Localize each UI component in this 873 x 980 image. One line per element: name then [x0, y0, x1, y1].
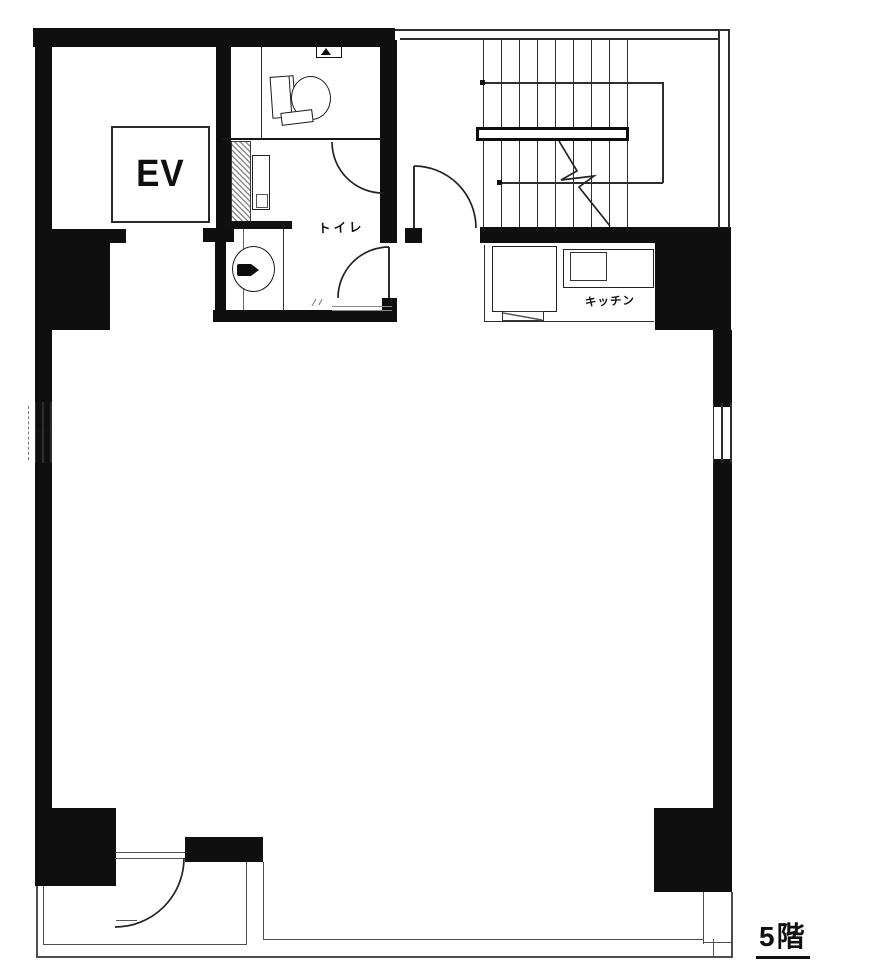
wall-toilet-right — [380, 40, 397, 243]
stair-boundary-top-outer — [395, 29, 729, 31]
balcony-left-inner-line — [43, 886, 44, 945]
pipe-shaft-hatch — [231, 141, 251, 222]
elevator-label: EV — [136, 153, 184, 196]
vanity-fixture — [252, 155, 270, 210]
toilet-label: トイレ — [318, 216, 365, 237]
left-window-center-line — [42, 402, 44, 463]
right-window-frame-left — [713, 403, 714, 463]
stair-handrail-bar — [476, 127, 629, 141]
balcony-step-line — [263, 862, 264, 940]
wc-door-swing-arc — [332, 142, 383, 193]
stairwell-node-dot — [480, 80, 485, 85]
balcony-right-cell-line — [703, 892, 704, 944]
stair-boundary-right-outer — [728, 29, 730, 228]
kitchen-label: キッチン — [585, 292, 636, 310]
stair-boundary-right-inner — [718, 29, 720, 228]
left-window-dash-marks — [28, 406, 29, 460]
left-window-frame-right — [50, 402, 52, 463]
balcony-right-cell-bottom — [703, 942, 732, 943]
wall-toilet-bottom — [213, 310, 397, 322]
right-window-center-line — [721, 403, 723, 463]
stairwell-right-line — [662, 82, 664, 183]
basin-faucet-icon — [237, 264, 252, 276]
balcony-main-inner-line — [263, 939, 704, 940]
balcony-left-outer-line — [36, 886, 38, 957]
stairwell-bottom-line — [497, 182, 663, 184]
kitchen-bottom-line — [484, 321, 654, 322]
wall-door-jamb — [405, 228, 422, 243]
floor-plan-canvas: EV トイレ キッチン 5階 — [0, 0, 873, 980]
wc-vent-window — [316, 46, 342, 58]
toilet-base-icon — [280, 109, 313, 126]
balcony-right-step-line — [713, 939, 714, 957]
wall-toilet-left — [216, 47, 231, 241]
stairwell-top-line — [483, 82, 663, 84]
refrigerator-space — [492, 246, 557, 312]
wall-bottom-left-block — [35, 808, 116, 886]
wall-right-block-lower — [654, 808, 732, 892]
basin-faucet-tip-icon — [251, 264, 259, 276]
toilet-threshold-line — [332, 310, 392, 311]
wall-right-block-upper — [655, 227, 731, 330]
balcony-door-threshold — [115, 858, 185, 859]
corridor-door-swing-arc — [414, 166, 476, 228]
wall-toilet-left-stub — [203, 228, 234, 242]
refrigerator-strip — [502, 311, 544, 321]
stair-boundary-top-inner — [400, 38, 718, 40]
balcony-door-tick — [116, 920, 137, 921]
stairwell-node-dot — [497, 180, 502, 185]
balcony-outer-bottom-line — [36, 956, 733, 958]
elevator-box: EV — [111, 126, 210, 223]
wall-right-upper — [713, 330, 732, 403]
balcony-right-outer-line — [731, 892, 733, 957]
left-window-frame-left — [35, 402, 36, 463]
corridor-door-leaf — [413, 166, 415, 228]
right-window-frame-right — [730, 403, 732, 463]
vent-triangle-icon — [321, 48, 331, 55]
kitchen-left-line — [484, 245, 485, 322]
balcony-door-swing-arc — [115, 858, 184, 927]
floor-title-label: 5階 — [756, 915, 810, 959]
basin-partition-line — [283, 229, 284, 311]
shaft-counter-bar — [223, 221, 292, 229]
threshold-tick-marks — [312, 299, 322, 306]
balcony-left-inner-bottom — [43, 944, 247, 945]
toilet-entry-door-leaf — [388, 247, 390, 298]
kitchen-sink-icon — [570, 252, 607, 281]
wall-right-lower — [713, 463, 732, 808]
wall-top — [33, 28, 395, 47]
wall-left-wing-block — [52, 243, 110, 330]
balcony-door-threshold — [115, 852, 185, 853]
wall-toilet-left-lower — [215, 241, 226, 311]
vanity-inner-box — [256, 194, 268, 208]
toilet-entry-door-swing-arc — [338, 247, 389, 298]
toilet-threshold-line — [332, 306, 392, 307]
balcony-door-cell-line — [246, 862, 247, 945]
wall-ev-hall-stub — [35, 229, 126, 243]
wall-bottom-bar — [185, 837, 263, 862]
wc-duct-strip-line — [261, 47, 262, 139]
